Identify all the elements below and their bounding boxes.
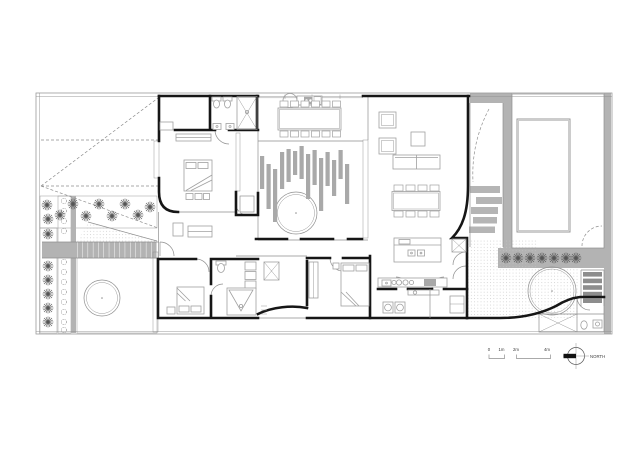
chair xyxy=(418,211,427,217)
plant-star xyxy=(43,289,54,300)
scale-tick-label: 4m xyxy=(544,347,550,352)
pergola-slat xyxy=(273,169,277,222)
chair xyxy=(406,211,415,217)
stair-tread xyxy=(583,298,602,303)
stepping-stone xyxy=(471,207,498,214)
driveway-paver-joints xyxy=(77,242,157,258)
chair xyxy=(322,131,330,137)
stepping-stone xyxy=(476,197,502,204)
plant-star xyxy=(43,229,54,240)
basin xyxy=(213,124,221,130)
pergola-slat xyxy=(280,152,284,189)
chair xyxy=(291,101,299,107)
pergola-slat xyxy=(287,149,291,182)
chair xyxy=(418,185,427,191)
plant-star xyxy=(43,317,54,328)
bidet xyxy=(225,100,231,108)
plant-star xyxy=(55,210,66,221)
stair-tread xyxy=(583,285,602,290)
north-label: NORTH xyxy=(590,354,605,359)
chair xyxy=(301,101,309,107)
pergola-slat xyxy=(313,150,317,185)
rear-garden xyxy=(467,240,538,318)
toilet xyxy=(218,264,225,273)
chair xyxy=(394,185,403,191)
chair xyxy=(291,131,299,137)
pergola-slat xyxy=(300,146,304,179)
pergola-slat xyxy=(260,156,264,189)
toilet xyxy=(214,100,220,108)
deck-edge-wall xyxy=(503,93,512,248)
plant-star xyxy=(120,199,131,210)
stepping-stone xyxy=(469,227,495,234)
scale-tick-label: 1m xyxy=(499,347,505,352)
fence-strip xyxy=(71,196,76,333)
chair xyxy=(430,211,439,217)
basin xyxy=(226,124,234,130)
floor-plan-drawing: 01m2m4m NORTH xyxy=(0,0,640,452)
laundry-counter xyxy=(408,290,439,295)
stair-tread xyxy=(583,272,602,277)
chair xyxy=(280,101,288,107)
plant-star xyxy=(561,253,572,264)
pergola-slat xyxy=(332,160,336,196)
chair xyxy=(333,101,341,107)
chair xyxy=(322,101,330,107)
scale-tick-label: 2m xyxy=(513,347,519,352)
chair xyxy=(333,131,341,137)
plant-star xyxy=(43,303,54,314)
driveway-apron xyxy=(42,242,77,258)
plant-star xyxy=(42,200,53,211)
stepping-stone xyxy=(473,217,497,224)
terrace-bench xyxy=(173,223,183,236)
plant-star xyxy=(525,253,536,264)
plant-star xyxy=(501,253,512,264)
stepping-stone xyxy=(470,186,500,193)
chair xyxy=(406,185,415,191)
plant-star xyxy=(43,275,54,286)
north-pointer xyxy=(564,354,577,358)
chair xyxy=(312,131,320,137)
plant-star xyxy=(81,211,92,222)
plant-star xyxy=(94,199,105,210)
pergola-slat xyxy=(319,158,323,211)
pergola-slat xyxy=(326,152,330,186)
chair xyxy=(430,185,439,191)
chair xyxy=(280,131,288,137)
chair xyxy=(312,101,320,107)
plant-star xyxy=(571,253,582,264)
plant-star xyxy=(68,199,79,210)
plant-star xyxy=(43,261,54,272)
pergola-slat xyxy=(345,164,349,204)
floor-plan-page: 01m2m4m NORTH xyxy=(0,0,640,452)
living-dining-table xyxy=(392,192,440,211)
plant-star xyxy=(537,253,548,264)
chair xyxy=(394,211,403,217)
plant-star xyxy=(133,210,144,221)
chair xyxy=(301,131,309,137)
long-dining-table xyxy=(278,108,341,130)
pergola-slat xyxy=(267,164,271,209)
pergola-slat xyxy=(339,150,343,179)
plant-star xyxy=(145,202,156,213)
swimming-pool xyxy=(517,119,570,232)
counter-cooktop xyxy=(424,279,436,286)
nightstand xyxy=(167,307,175,314)
pergola-slat xyxy=(293,151,297,175)
stair-tread xyxy=(583,279,602,284)
nightstand xyxy=(333,263,339,269)
side-table xyxy=(411,132,425,146)
plant-star xyxy=(43,214,54,225)
pergola-slat xyxy=(306,154,310,199)
plant-star xyxy=(107,211,118,222)
plant-star xyxy=(513,253,524,264)
plant-star xyxy=(549,253,560,264)
